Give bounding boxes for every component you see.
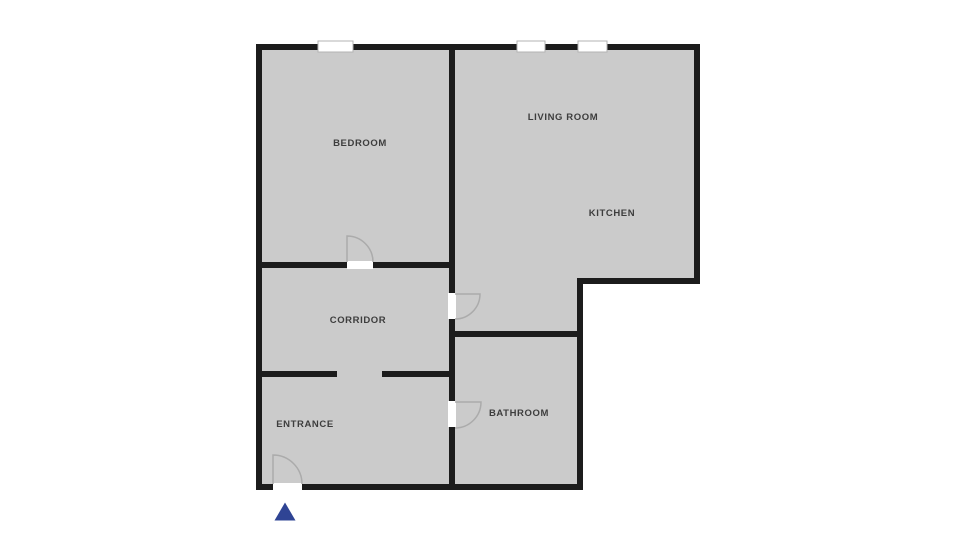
entrance-door-opening	[273, 483, 302, 491]
room-label-entrance: ENTRANCE	[276, 419, 334, 430]
entrance-marker-icon	[275, 503, 296, 521]
bathroom-door-opening	[448, 401, 456, 427]
window-living-room-right-icon	[578, 41, 607, 52]
room-label-bedroom: BEDROOM	[333, 138, 387, 149]
bedroom-door-opening	[347, 261, 373, 269]
window-living-room-left-icon	[517, 41, 545, 52]
room-label-bathroom: BATHROOM	[489, 408, 549, 419]
corridor-door-opening	[448, 293, 456, 319]
room-label-corridor: CORRIDOR	[330, 315, 387, 326]
room-label-kitchen: KITCHEN	[589, 208, 635, 219]
floor-plan-canvas: BEDROOM LIVING ROOM KITCHEN CORRIDOR BAT…	[0, 0, 958, 539]
floor-plan: BEDROOM LIVING ROOM KITCHEN CORRIDOR BAT…	[0, 0, 958, 539]
window-bedroom-icon	[318, 41, 353, 52]
room-label-living-room: LIVING ROOM	[528, 112, 598, 123]
